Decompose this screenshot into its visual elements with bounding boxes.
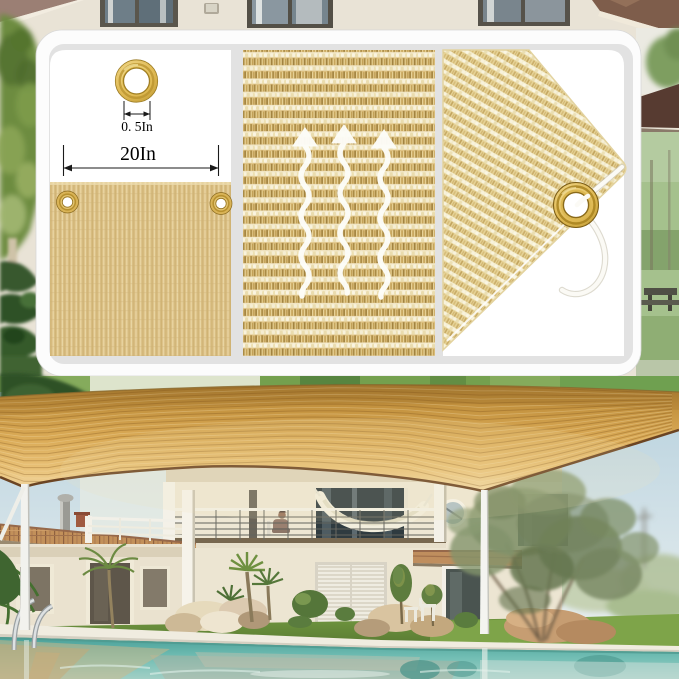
svg-text:20In: 20In [120, 144, 156, 165]
svg-text:0. 5In: 0. 5In [121, 119, 153, 134]
